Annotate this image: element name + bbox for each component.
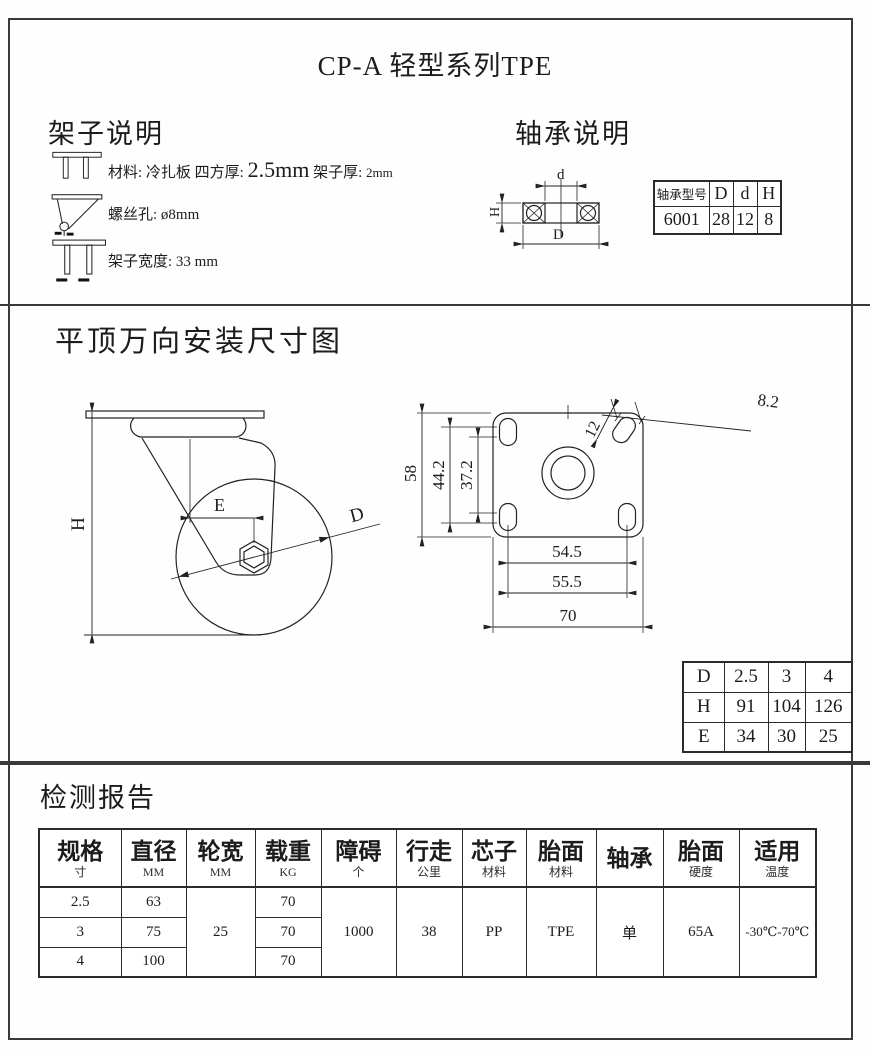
column-header-obstacle: 障碍个	[321, 829, 396, 887]
header-sub: KG	[256, 865, 321, 880]
table-row: H 91 104 126	[683, 692, 852, 722]
wheel-width-cell: 25	[186, 887, 255, 977]
bearing-section-heading: 轴承说明	[515, 112, 631, 151]
header-main: 障碍	[322, 839, 396, 865]
column-header-tread-material: 胎面材料	[526, 829, 596, 887]
mounting-plate-top-view-drawing: 58 44.2 37.2 12 8.2 54.5 55.5 70	[395, 365, 805, 657]
column-header-temperature: 适用温度	[739, 829, 816, 887]
header-main: 直径	[122, 839, 186, 865]
dhe-dimension-table: D 2.5 3 4 H 91 104 126 E 34 30 25	[682, 661, 853, 753]
header-main: 行走	[397, 839, 462, 865]
section-divider	[0, 761, 870, 765]
dim-70-label: 70	[560, 606, 577, 625]
header-main: 适用	[740, 839, 816, 865]
header-sub: 材料	[463, 865, 526, 880]
header-row: 规格寸 直径MM 轮宽MM 载重KG 障碍个 行走公里 芯子材料 胎面材料 轴承…	[39, 829, 816, 887]
header-sub: 温度	[740, 865, 816, 880]
header-sub: MM	[187, 865, 255, 880]
column-header-travel: 行走公里	[396, 829, 462, 887]
table-cell: 30	[768, 722, 805, 752]
column-header-diameter: 直径MM	[121, 829, 186, 887]
header-sub: MM	[122, 865, 186, 880]
frame-thickness-label: 架子厚:	[309, 165, 366, 181]
load-cell: 70	[255, 887, 321, 917]
bearing-model-header: 轴承型号	[654, 181, 709, 206]
dim-37-2-label: 37.2	[457, 460, 476, 490]
column-header-wheel-width: 轮宽MM	[186, 829, 255, 887]
header-sub: 寸	[40, 865, 121, 880]
header-sub: 公里	[397, 865, 462, 880]
caster-side-view-drawing: H E D	[58, 385, 408, 657]
obstacle-cell: 1000	[321, 887, 396, 977]
dim-54-5-label: 54.5	[552, 542, 582, 561]
dim-E-label: E	[214, 495, 225, 515]
dim-58-label: 58	[401, 465, 420, 482]
load-cell: 70	[255, 947, 321, 977]
spec-cell: 2.5	[39, 887, 121, 917]
bearing-model-value: 6001	[654, 206, 709, 234]
frame-width-label: 架子宽度:	[108, 254, 176, 270]
frame-section-heading: 架子说明	[48, 112, 164, 151]
travel-cell: 38	[396, 887, 462, 977]
diameter-cell: 75	[121, 917, 186, 947]
header-main: 轮宽	[187, 839, 255, 865]
test-report-table: 规格寸 直径MM 轮宽MM 载重KG 障碍个 行走公里 芯子材料 胎面材料 轴承…	[38, 828, 817, 978]
screw-hole-value: ø8mm	[161, 207, 199, 223]
core-material-cell: PP	[462, 887, 526, 977]
bearing-d-value: 12	[733, 206, 757, 234]
table-row: D 2.5 3 4	[683, 662, 852, 692]
tread-material-cell: TPE	[526, 887, 596, 977]
spec-cell: 4	[39, 947, 121, 977]
frame-material-spec: 材料: 冷扎板 四方厚: 2.5mm 架子厚: 2mm	[108, 157, 393, 183]
dhe-row-label: D	[683, 662, 724, 692]
section-divider	[0, 304, 870, 306]
header-sub: 材料	[527, 865, 596, 880]
bearing-dim-d-label: d	[557, 167, 565, 183]
dim-12-label: 12	[582, 419, 604, 441]
diameter-cell: 100	[121, 947, 186, 977]
table-cell: 25	[805, 722, 852, 752]
column-header-spec: 规格寸	[39, 829, 121, 887]
bearing-cell: 单	[596, 887, 663, 977]
frame-width-icon	[52, 237, 108, 289]
header-main: 载重	[256, 839, 321, 865]
bearing-dim-H-label: H	[488, 207, 503, 217]
frame-width-spec: 架子宽度: 33 mm	[108, 250, 218, 271]
table-row: 2.5 63 25 70 1000 38 PP TPE 单 65A -30℃-7…	[39, 887, 816, 917]
page-title: CP-A 轻型系列TPE	[0, 44, 870, 83]
install-section-heading: 平顶万向安装尺寸图	[55, 318, 343, 360]
square-thickness-value: 2.5mm	[248, 157, 310, 182]
dim-8-2-label: 8.2	[756, 390, 780, 412]
header-main: 胎面	[664, 839, 739, 865]
header-sub: 硬度	[664, 865, 739, 880]
table-cell: 126	[805, 692, 852, 722]
column-header-core: 芯子材料	[462, 829, 526, 887]
table-cell: 104	[768, 692, 805, 722]
frame-thickness-value: 2mm	[366, 165, 393, 180]
table-cell: 3	[768, 662, 805, 692]
dim-H-label: H	[68, 517, 89, 531]
bearing-H-value: 8	[757, 206, 781, 234]
column-header-tread-hardness: 胎面硬度	[663, 829, 739, 887]
bearing-d-header: d	[733, 181, 757, 206]
header-main: 规格	[40, 839, 121, 865]
report-section-heading: 检测报告	[40, 776, 156, 815]
table-cell: 34	[724, 722, 768, 752]
dim-44-2-label: 44.2	[429, 460, 448, 490]
bearing-D-header: D	[709, 181, 733, 206]
caster-spec-sheet: CP-A 轻型系列TPE 架子说明 材料: 冷扎板 四方厚: 2.5mm 架子厚…	[0, 0, 870, 1055]
column-header-load: 载重KG	[255, 829, 321, 887]
header-sub: 个	[322, 865, 396, 880]
table-cell: 91	[724, 692, 768, 722]
column-header-bearing: 轴承	[596, 829, 663, 887]
table-row: E 34 30 25	[683, 722, 852, 752]
header-main: 胎面	[527, 839, 596, 865]
diameter-cell: 63	[121, 887, 186, 917]
bearing-spec-table: 轴承型号 D d H 6001 28 12 8	[653, 180, 782, 235]
dhe-row-label: E	[683, 722, 724, 752]
table-cell: 4	[805, 662, 852, 692]
header-main: 轴承	[597, 846, 663, 872]
dim-D-label: D	[348, 503, 367, 527]
screw-hole-spec: 螺丝孔: ø8mm	[108, 203, 199, 224]
bearing-D-value: 28	[709, 206, 733, 234]
frame-width-value: 33 mm	[176, 254, 218, 270]
load-cell: 70	[255, 917, 321, 947]
temperature-cell: -30℃-70℃	[739, 887, 816, 977]
material-label: 材料: 冷扎板 四方厚:	[108, 165, 248, 181]
bearing-cross-section-drawing: d D H	[490, 165, 620, 260]
fork-side-view-icon	[50, 193, 104, 241]
bearing-dim-D-label: D	[553, 227, 564, 243]
tread-hardness-cell: 65A	[663, 887, 739, 977]
spec-cell: 3	[39, 917, 121, 947]
frame-front-view-icon	[52, 150, 102, 187]
header-main: 芯子	[463, 839, 526, 865]
dim-55-5-label: 55.5	[552, 572, 582, 591]
table-cell: 2.5	[724, 662, 768, 692]
dhe-row-label: H	[683, 692, 724, 722]
screw-hole-label: 螺丝孔:	[108, 207, 161, 223]
bearing-H-header: H	[757, 181, 781, 206]
